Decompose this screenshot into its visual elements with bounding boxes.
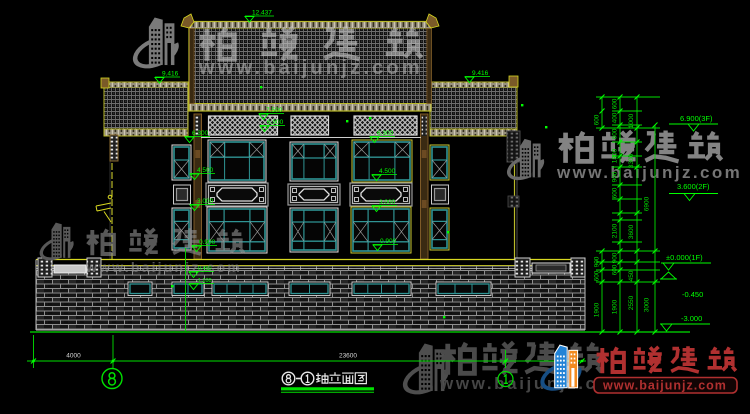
svg-text:www.baijunjz.com: www.baijunjz.com — [556, 163, 742, 182]
svg-text:-1.100: -1.100 — [196, 278, 212, 284]
svg-text:3600: 3600 — [628, 224, 635, 239]
svg-text:4000: 4000 — [66, 353, 81, 360]
svg-text:-0.450: -0.450 — [682, 290, 703, 299]
svg-text:450: 450 — [628, 270, 635, 281]
svg-text:9.416: 9.416 — [162, 71, 179, 78]
svg-text:2100: 2100 — [612, 223, 619, 238]
svg-text:4.500: 4.500 — [379, 168, 396, 175]
svg-text:6.900: 6.900 — [267, 119, 284, 126]
svg-text:6900: 6900 — [644, 196, 651, 211]
svg-text:4.500: 4.500 — [197, 167, 214, 174]
svg-text:3000: 3000 — [644, 297, 651, 312]
svg-text:900: 900 — [612, 252, 619, 263]
svg-text:1800: 1800 — [612, 148, 619, 163]
svg-text:-0.450: -0.450 — [196, 266, 212, 272]
svg-text:600: 600 — [594, 270, 601, 281]
svg-text:±0.000(1F): ±0.000(1F) — [666, 253, 703, 262]
svg-text:2550: 2550 — [628, 295, 635, 310]
svg-text:6.300: 6.300 — [192, 130, 209, 137]
svg-text:9.416: 9.416 — [472, 70, 489, 77]
svg-text:1900: 1900 — [594, 302, 601, 317]
svg-text:3300: 3300 — [628, 153, 635, 168]
svg-text:23600: 23600 — [339, 353, 357, 360]
svg-text:3.000: 3.000 — [197, 198, 214, 205]
svg-text:1000: 1000 — [628, 113, 635, 128]
svg-text:12.437: 12.437 — [252, 10, 272, 17]
svg-text:www.baijunjz.com: www.baijunjz.com — [602, 379, 727, 393]
svg-text:7.500: 7.500 — [266, 107, 283, 114]
svg-text:0.900: 0.900 — [380, 238, 397, 245]
svg-text:600: 600 — [612, 187, 619, 198]
svg-text:900: 900 — [594, 256, 601, 267]
svg-text:600: 600 — [612, 98, 619, 109]
svg-text:1900: 1900 — [612, 299, 619, 314]
svg-text:www.baijunjz.com: www.baijunjz.com — [85, 259, 242, 275]
svg-text:600: 600 — [612, 264, 619, 275]
svg-text:900: 900 — [612, 171, 619, 182]
svg-text:3.600(2F): 3.600(2F) — [677, 182, 710, 191]
svg-text:0.900: 0.900 — [199, 239, 216, 246]
svg-text:www.baijunjz.com: www.baijunjz.com — [198, 57, 423, 79]
svg-text:600: 600 — [594, 114, 601, 125]
svg-text:400: 400 — [612, 112, 619, 123]
svg-text:3.000: 3.000 — [379, 199, 396, 206]
svg-text:600: 600 — [612, 128, 619, 139]
svg-text:6.900(3F): 6.900(3F) — [680, 114, 713, 123]
svg-text:-3.000: -3.000 — [681, 314, 702, 323]
svg-text:6.300: 6.300 — [377, 130, 394, 137]
